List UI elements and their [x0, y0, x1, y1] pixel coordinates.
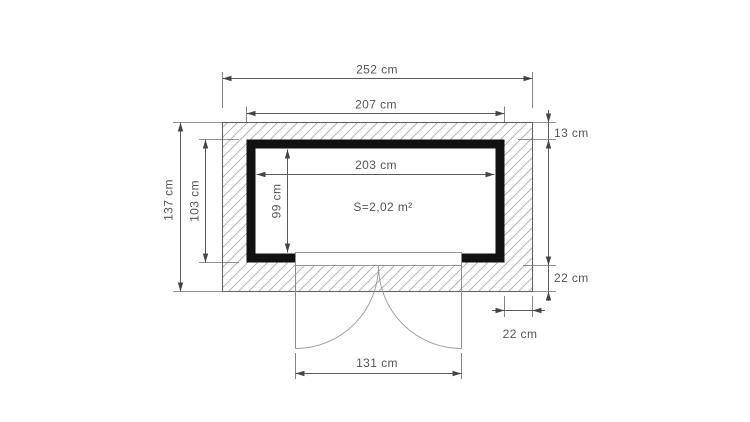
dimension-door-width: 131 cm — [296, 353, 462, 379]
dim-label-top-overhang: 13 cm — [554, 126, 589, 140]
dim-label-total-depth: 137 cm — [162, 179, 176, 221]
dim-label-inner-width: 203 cm — [355, 158, 397, 172]
door-threshold — [296, 253, 462, 266]
dim-label-door-width: 131 cm — [356, 356, 398, 370]
dimension-wall-outer-width: 207 cm — [247, 98, 505, 123]
dim-label-side-overhang: 22 cm — [554, 271, 589, 285]
dim-label-wall-outer-width: 207 cm — [355, 98, 397, 112]
dim-label-inner-depth: 99 cm — [270, 184, 284, 219]
dimension-corner-overhang: 22 cm — [492, 296, 545, 341]
shed-floor-plan-drawing: S=2,02 m² 252 cm 207 cm 203 cm 137 cm 10… — [0, 0, 750, 422]
area-label: S=2,02 m² — [353, 200, 412, 214]
dim-label-wall-outer-depth: 103 cm — [188, 180, 202, 222]
dim-label-corner-overhang: 22 cm — [503, 327, 538, 341]
drawing-canvas: S=2,02 m² 252 cm 207 cm 203 cm 137 cm 10… — [0, 0, 750, 422]
dim-label-total-width: 252 cm — [356, 63, 398, 77]
